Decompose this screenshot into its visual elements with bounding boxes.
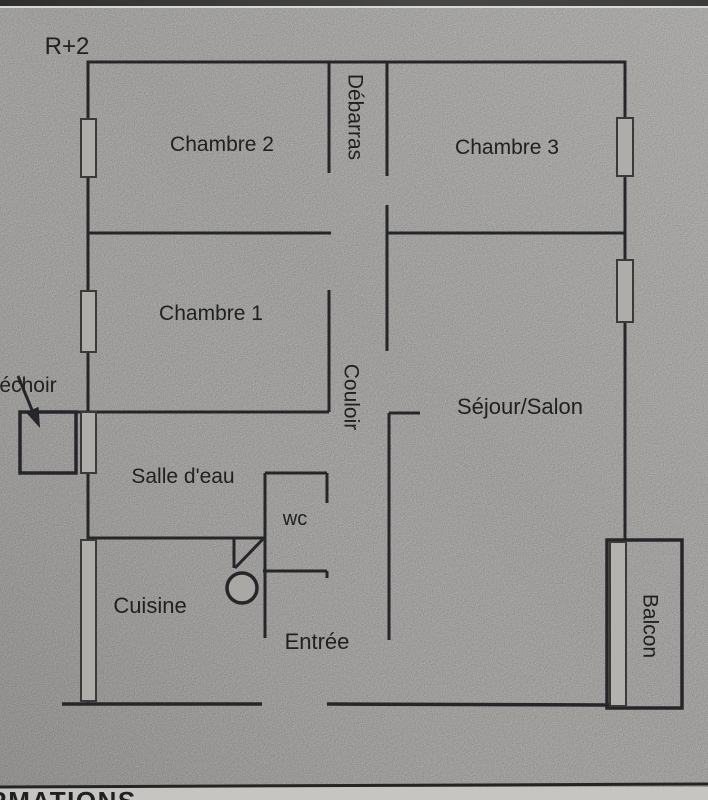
- wall-bottom-right: [327, 704, 612, 705]
- room-label-sejour-salon: Séjour/Salon: [457, 394, 583, 419]
- room-label-wc: wc: [282, 508, 307, 530]
- room-label-chambre-3: Chambre 3: [455, 136, 559, 159]
- door-knob-circle: [227, 573, 257, 603]
- room-label-couloir: Couloir: [340, 364, 363, 431]
- scanned-page: R+2 Chambre 2 Débarras Chambre 3 Chambre…: [0, 0, 708, 800]
- window-chambre1: [81, 291, 96, 352]
- top-scan-band: [0, 0, 708, 6]
- room-label-debarras: Débarras: [344, 74, 367, 160]
- window-chambre2: [81, 119, 96, 177]
- balcon-window-band: [610, 542, 626, 706]
- window-cuisine: [81, 540, 96, 701]
- window-sejour: [617, 260, 633, 322]
- room-label-balcon: Balcon: [639, 594, 662, 658]
- window-chambre3: [617, 118, 633, 176]
- room-label-sechoir-truncated: échoir: [0, 374, 57, 397]
- door-salle-deau-sechoir: [81, 412, 96, 473]
- level-label: R+2: [45, 33, 90, 60]
- footer-truncated-heading: RMATIONS: [0, 786, 137, 800]
- room-label-chambre-1: Chambre 1: [159, 302, 263, 325]
- room-label-entree: Entrée: [285, 629, 350, 654]
- room-label-salle-deau: Salle d'eau: [131, 465, 234, 488]
- top-scan-band-highlight: [0, 6, 708, 8]
- room-label-chambre-2: Chambre 2: [170, 133, 274, 156]
- room-label-cuisine: Cuisine: [113, 593, 186, 618]
- floor-plan: R+2 Chambre 2 Débarras Chambre 3 Chambre…: [0, 0, 708, 800]
